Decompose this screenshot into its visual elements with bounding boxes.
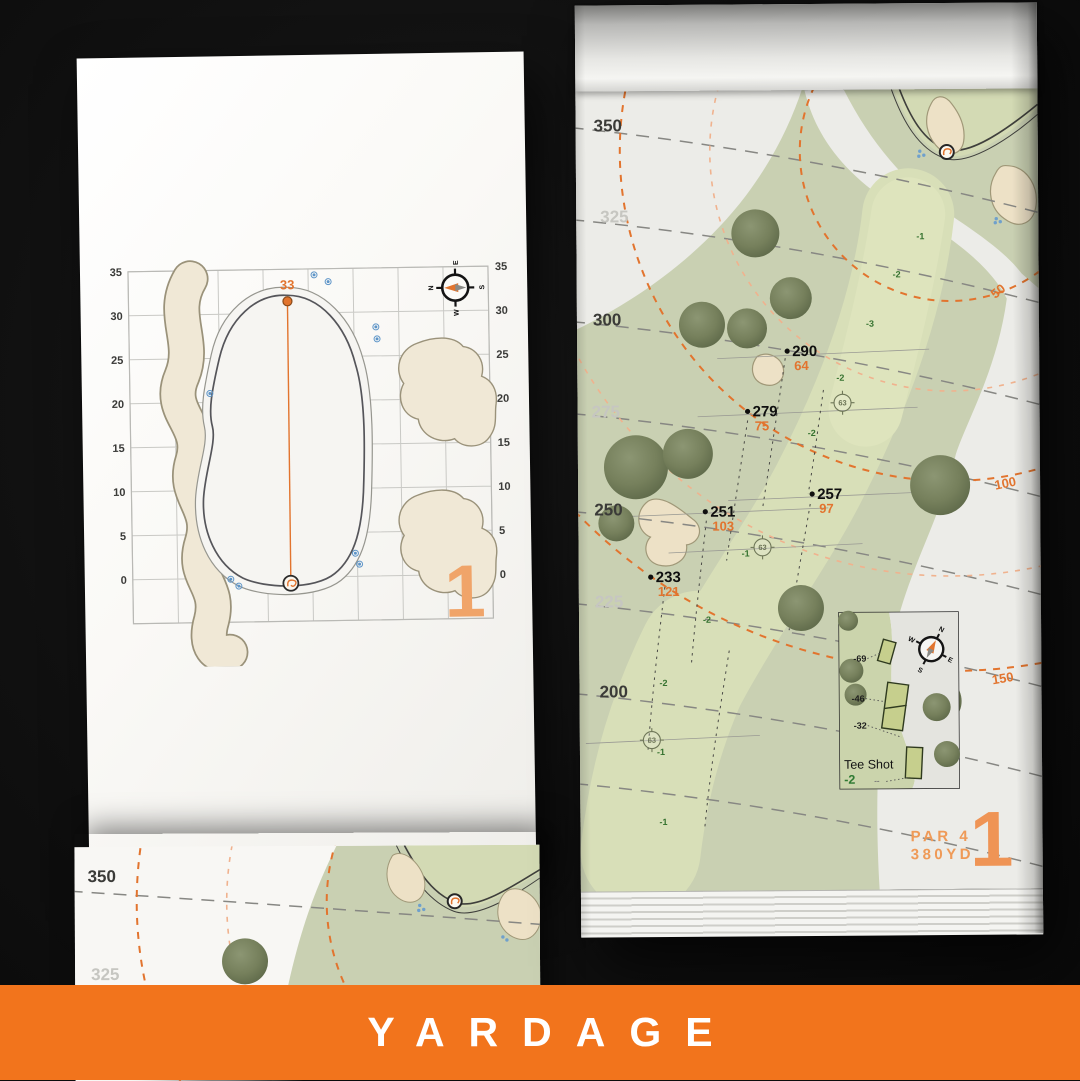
banner-title: YARDAGE bbox=[343, 1009, 736, 1056]
slope-value: -2 bbox=[659, 678, 667, 688]
slope-value: -3 bbox=[866, 319, 874, 329]
pin-icon bbox=[448, 894, 462, 908]
sprinkler-distance: 63 bbox=[838, 398, 846, 407]
yardage-band-label: 325 bbox=[600, 207, 629, 226]
green-outline bbox=[192, 286, 375, 596]
axis-tick: 25 bbox=[496, 349, 508, 361]
stacked-page-edges bbox=[581, 888, 1043, 937]
tee-shot-slope: -2 bbox=[844, 773, 855, 787]
tee-distance-label: -46 bbox=[852, 694, 865, 704]
axis-tick: 10 bbox=[113, 487, 125, 499]
hole-number: 1 bbox=[444, 549, 486, 633]
sprinkler-icon bbox=[325, 279, 331, 285]
axis-tick: 35 bbox=[110, 267, 122, 279]
distance-label: 380YD bbox=[911, 846, 974, 863]
yardage-band-label: 275 bbox=[592, 402, 621, 421]
sprinkler-icon bbox=[373, 324, 379, 330]
to-pin-distance: 75 bbox=[755, 418, 770, 433]
compass-s: S bbox=[479, 284, 486, 289]
compass-n: N bbox=[428, 285, 435, 290]
axis-tick: 20 bbox=[497, 393, 509, 405]
axis-tick: 30 bbox=[496, 305, 508, 317]
back-edge-distance-label: 33 bbox=[280, 277, 295, 292]
compass-e: E bbox=[453, 260, 460, 265]
tee-shot-title: Tee Shot bbox=[844, 757, 894, 771]
yardage-band-label: 300 bbox=[593, 310, 622, 329]
hole-number: 1 bbox=[970, 795, 1014, 883]
to-pin-distance: 103 bbox=[712, 519, 734, 534]
back-tee-dots: -- bbox=[874, 777, 880, 786]
yardage-band-label: 225 bbox=[595, 592, 624, 611]
axis-labels-right: 35 30 25 20 15 10 5 0 bbox=[495, 261, 512, 581]
yardage-band-label: 350 bbox=[594, 116, 623, 135]
slope-value: -1 bbox=[659, 817, 667, 827]
sprinkler-distance: 63 bbox=[648, 736, 656, 745]
axis-tick: 35 bbox=[495, 261, 507, 273]
sprinkler-distance: 63 bbox=[758, 543, 766, 552]
slope-value: -2 bbox=[836, 373, 844, 383]
axis-tick: 5 bbox=[120, 531, 126, 543]
slope-value: -2 bbox=[808, 428, 816, 438]
slope-value: -2 bbox=[893, 269, 901, 279]
page-edge-shadow bbox=[1011, 2, 1043, 933]
axis-tick: 15 bbox=[112, 443, 124, 455]
tree bbox=[934, 741, 960, 767]
to-pin-distance: 97 bbox=[819, 501, 834, 516]
slope-value: -2 bbox=[703, 615, 711, 625]
hole-map: 50 100 150 bbox=[575, 88, 1043, 891]
yardage-band-label: 200 bbox=[599, 682, 628, 701]
tee-distance-label: -32 bbox=[854, 721, 867, 731]
slope-value: -1 bbox=[742, 548, 750, 558]
axis-labels-left: 35 30 25 20 15 10 5 0 bbox=[110, 267, 127, 587]
axis-tick: 5 bbox=[499, 525, 505, 537]
par-label: PAR 4 bbox=[911, 828, 972, 845]
to-pin-distance: 121 bbox=[658, 584, 680, 599]
axis-tick: 20 bbox=[112, 399, 124, 411]
sprinkler-icon bbox=[311, 272, 317, 278]
back-edge-dot bbox=[283, 297, 292, 306]
to-pin-distance: 64 bbox=[794, 358, 809, 373]
axis-tick: 10 bbox=[498, 481, 510, 493]
dark-backdrop: 33 35 30 25 20 15 bbox=[0, 0, 1080, 1080]
yardage-band-label: 350 bbox=[88, 867, 116, 886]
compass-icon: N E S W bbox=[428, 259, 487, 316]
axis-tick: 25 bbox=[111, 355, 123, 367]
slope-value: -1 bbox=[916, 231, 924, 241]
axis-tick: 0 bbox=[500, 569, 506, 581]
yardage-band-label: 250 bbox=[594, 500, 623, 519]
pin-icon bbox=[940, 145, 954, 159]
axis-tick: 0 bbox=[121, 575, 127, 587]
tee-shot-inset: -69 -46 -32 Tee Shot -2 -- N E S W bbox=[838, 610, 966, 789]
yardage-band-label: 325 bbox=[91, 965, 119, 984]
tree bbox=[838, 611, 858, 631]
tee-distance-label: -69 bbox=[853, 654, 866, 664]
compass-w: W bbox=[454, 309, 461, 316]
axis-tick: 30 bbox=[110, 311, 122, 323]
green-detail-page: 33 35 30 25 20 15 bbox=[77, 52, 537, 877]
tree bbox=[222, 938, 268, 984]
tree bbox=[923, 693, 951, 721]
axis-tick: 15 bbox=[498, 437, 510, 449]
sprinkler-icon bbox=[374, 336, 380, 342]
hole-map-page: 50 100 150 bbox=[575, 2, 1043, 936]
slope-value: -1 bbox=[657, 747, 665, 757]
green-detail-chart: 33 35 30 25 20 15 bbox=[98, 250, 514, 668]
title-banner: YARDAGE bbox=[0, 985, 1080, 1080]
page-curl-flipped bbox=[575, 2, 1038, 91]
